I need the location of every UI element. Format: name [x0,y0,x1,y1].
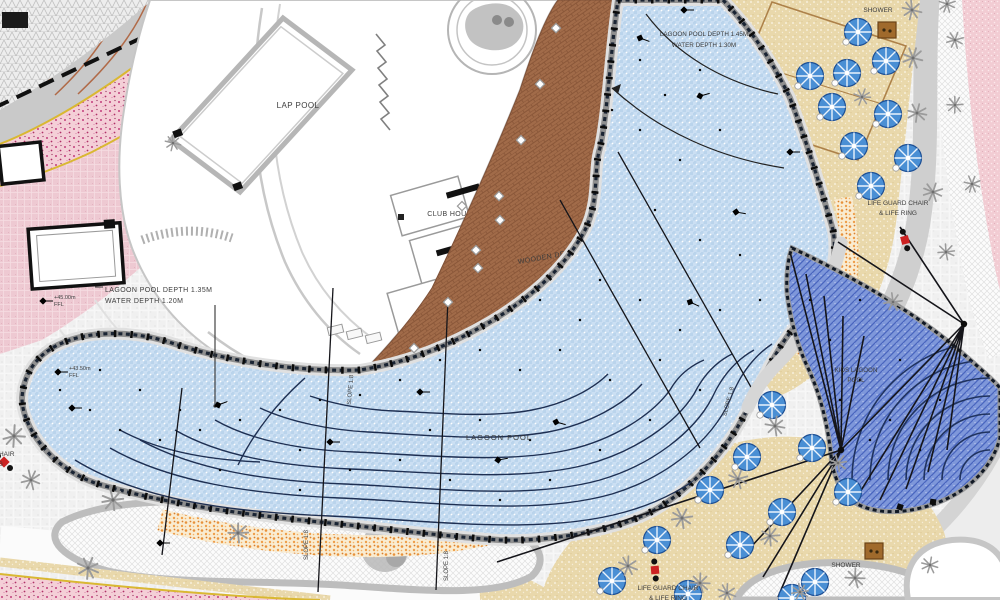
debris-dot [599,279,601,281]
debris-dot [759,299,761,301]
spot-level-ffl: FFL [54,302,64,308]
debris-dot [639,299,641,301]
debris-dot [519,369,521,371]
slope-label-2: SLOPE 1:8 [444,550,450,581]
debris-dot [939,399,941,401]
shade-pole-1 [838,447,844,453]
depth-label-top-2: WATER DEPTH 1.30M [672,42,736,49]
rotunda-dot-2 [504,17,514,27]
site-plan-canvas: LAP POOL CLUB HOUSE WOODEN DECK [0,0,1000,600]
kids-pool-label-1: KIDS LAGOON [835,367,878,374]
lifeguard-label-bottom-2: & LIFE RING [649,595,687,600]
debris-dot [99,369,101,371]
debris-dot [659,359,661,361]
debris-dot [719,309,721,311]
debris-dot [699,69,701,71]
depth-label-top-1: LAGOON POOL DEPTH 1.45M [660,31,748,38]
debris-dot [159,439,161,441]
depth-label-left-2: WATER DEPTH 1.20M [105,298,183,305]
debris-dot [549,479,551,481]
debris-dot [449,479,451,481]
debris-dot [869,439,871,441]
lap-pool-label: LAP POOL [277,101,320,110]
spot-level-value: +45.00m [54,295,76,301]
lifeguard-label-right-2: & LIFE RING [879,210,917,217]
debris-dot [179,409,181,411]
debris-dot [539,299,541,301]
shower-label-bottom: SHOWER [831,562,861,569]
debris-dot [839,399,841,401]
debris-dot [399,459,401,461]
slope-label-1: SLOPE 1:8 [304,529,310,560]
debris-dot [359,394,361,396]
debris-dot [919,449,921,451]
debris-dot [609,379,611,381]
lifeguard-label-right-1: LIFE GUARD CHAIR [867,200,928,207]
debris-dot [479,419,481,421]
debris-dot [579,319,581,321]
debris-dot [611,109,613,111]
spot-level-value: +43.50m [69,366,91,372]
debris-dot [719,129,721,131]
lifeguard-label-left-1: LIFE GUARD CHAIR [0,451,15,458]
debris-dot [139,389,141,391]
shade-pole-2 [961,321,967,327]
debris-dot [429,429,431,431]
debris-dot [739,254,741,256]
debris-dot [199,429,201,431]
debris-dot [559,349,561,351]
debris-dot [349,469,351,471]
debris-dot [899,359,901,361]
depth-label-left-1: LAGOON POOL DEPTH 1.35M [105,287,212,294]
debris-dot [599,449,601,451]
debris-dot [239,419,241,421]
rotunda-canopy [465,3,523,50]
debris-dot [439,359,441,361]
debris-dot [639,59,641,61]
debris-dot [889,419,891,421]
debris-dot [299,449,301,451]
debris-dot [809,299,811,301]
spot-level-ffl: FFL [69,373,79,379]
shower-label-top: SHOWER [863,7,893,14]
debris-dot [699,389,701,391]
debris-dot [89,409,91,411]
plunge-pool [907,540,1000,600]
debris-dot [59,389,61,391]
debris-dot [679,329,681,331]
debris-dot [219,469,221,471]
lifeguard-label-bottom-1: LIFE GUARD CHAIR [637,585,698,592]
debris-dot [299,489,301,491]
rotunda-dot-1 [492,15,502,25]
debris-dot [319,399,321,401]
spa-pool [28,219,124,289]
debris-dot [639,129,641,131]
debris-dot [119,429,121,431]
debris-dot [699,239,701,241]
debris-dot [649,419,651,421]
debris-dot [679,159,681,161]
debris-dot [479,349,481,351]
debris-dot [279,409,281,411]
utility-box [2,12,28,28]
shower-icon [865,543,883,559]
lagoon-pool-label: LAGOON POOL [466,433,532,442]
kids-pool-label-2: POOL [847,377,865,384]
shower-icon [878,22,896,38]
debris-dot [664,94,666,96]
debris-dot [859,299,861,301]
site-plan: LAP POOL CLUB HOUSE WOODEN DECK [0,0,1000,600]
plant-room [0,142,44,184]
debris-dot [399,379,401,381]
lifeguard-label-left-2: & LIFE RING [0,461,3,468]
club-house-door-1 [398,214,404,220]
kids-edge-block-2 [930,499,937,506]
debris-dot [829,339,831,341]
debris-dot [654,209,656,211]
debris-dot [499,499,501,501]
